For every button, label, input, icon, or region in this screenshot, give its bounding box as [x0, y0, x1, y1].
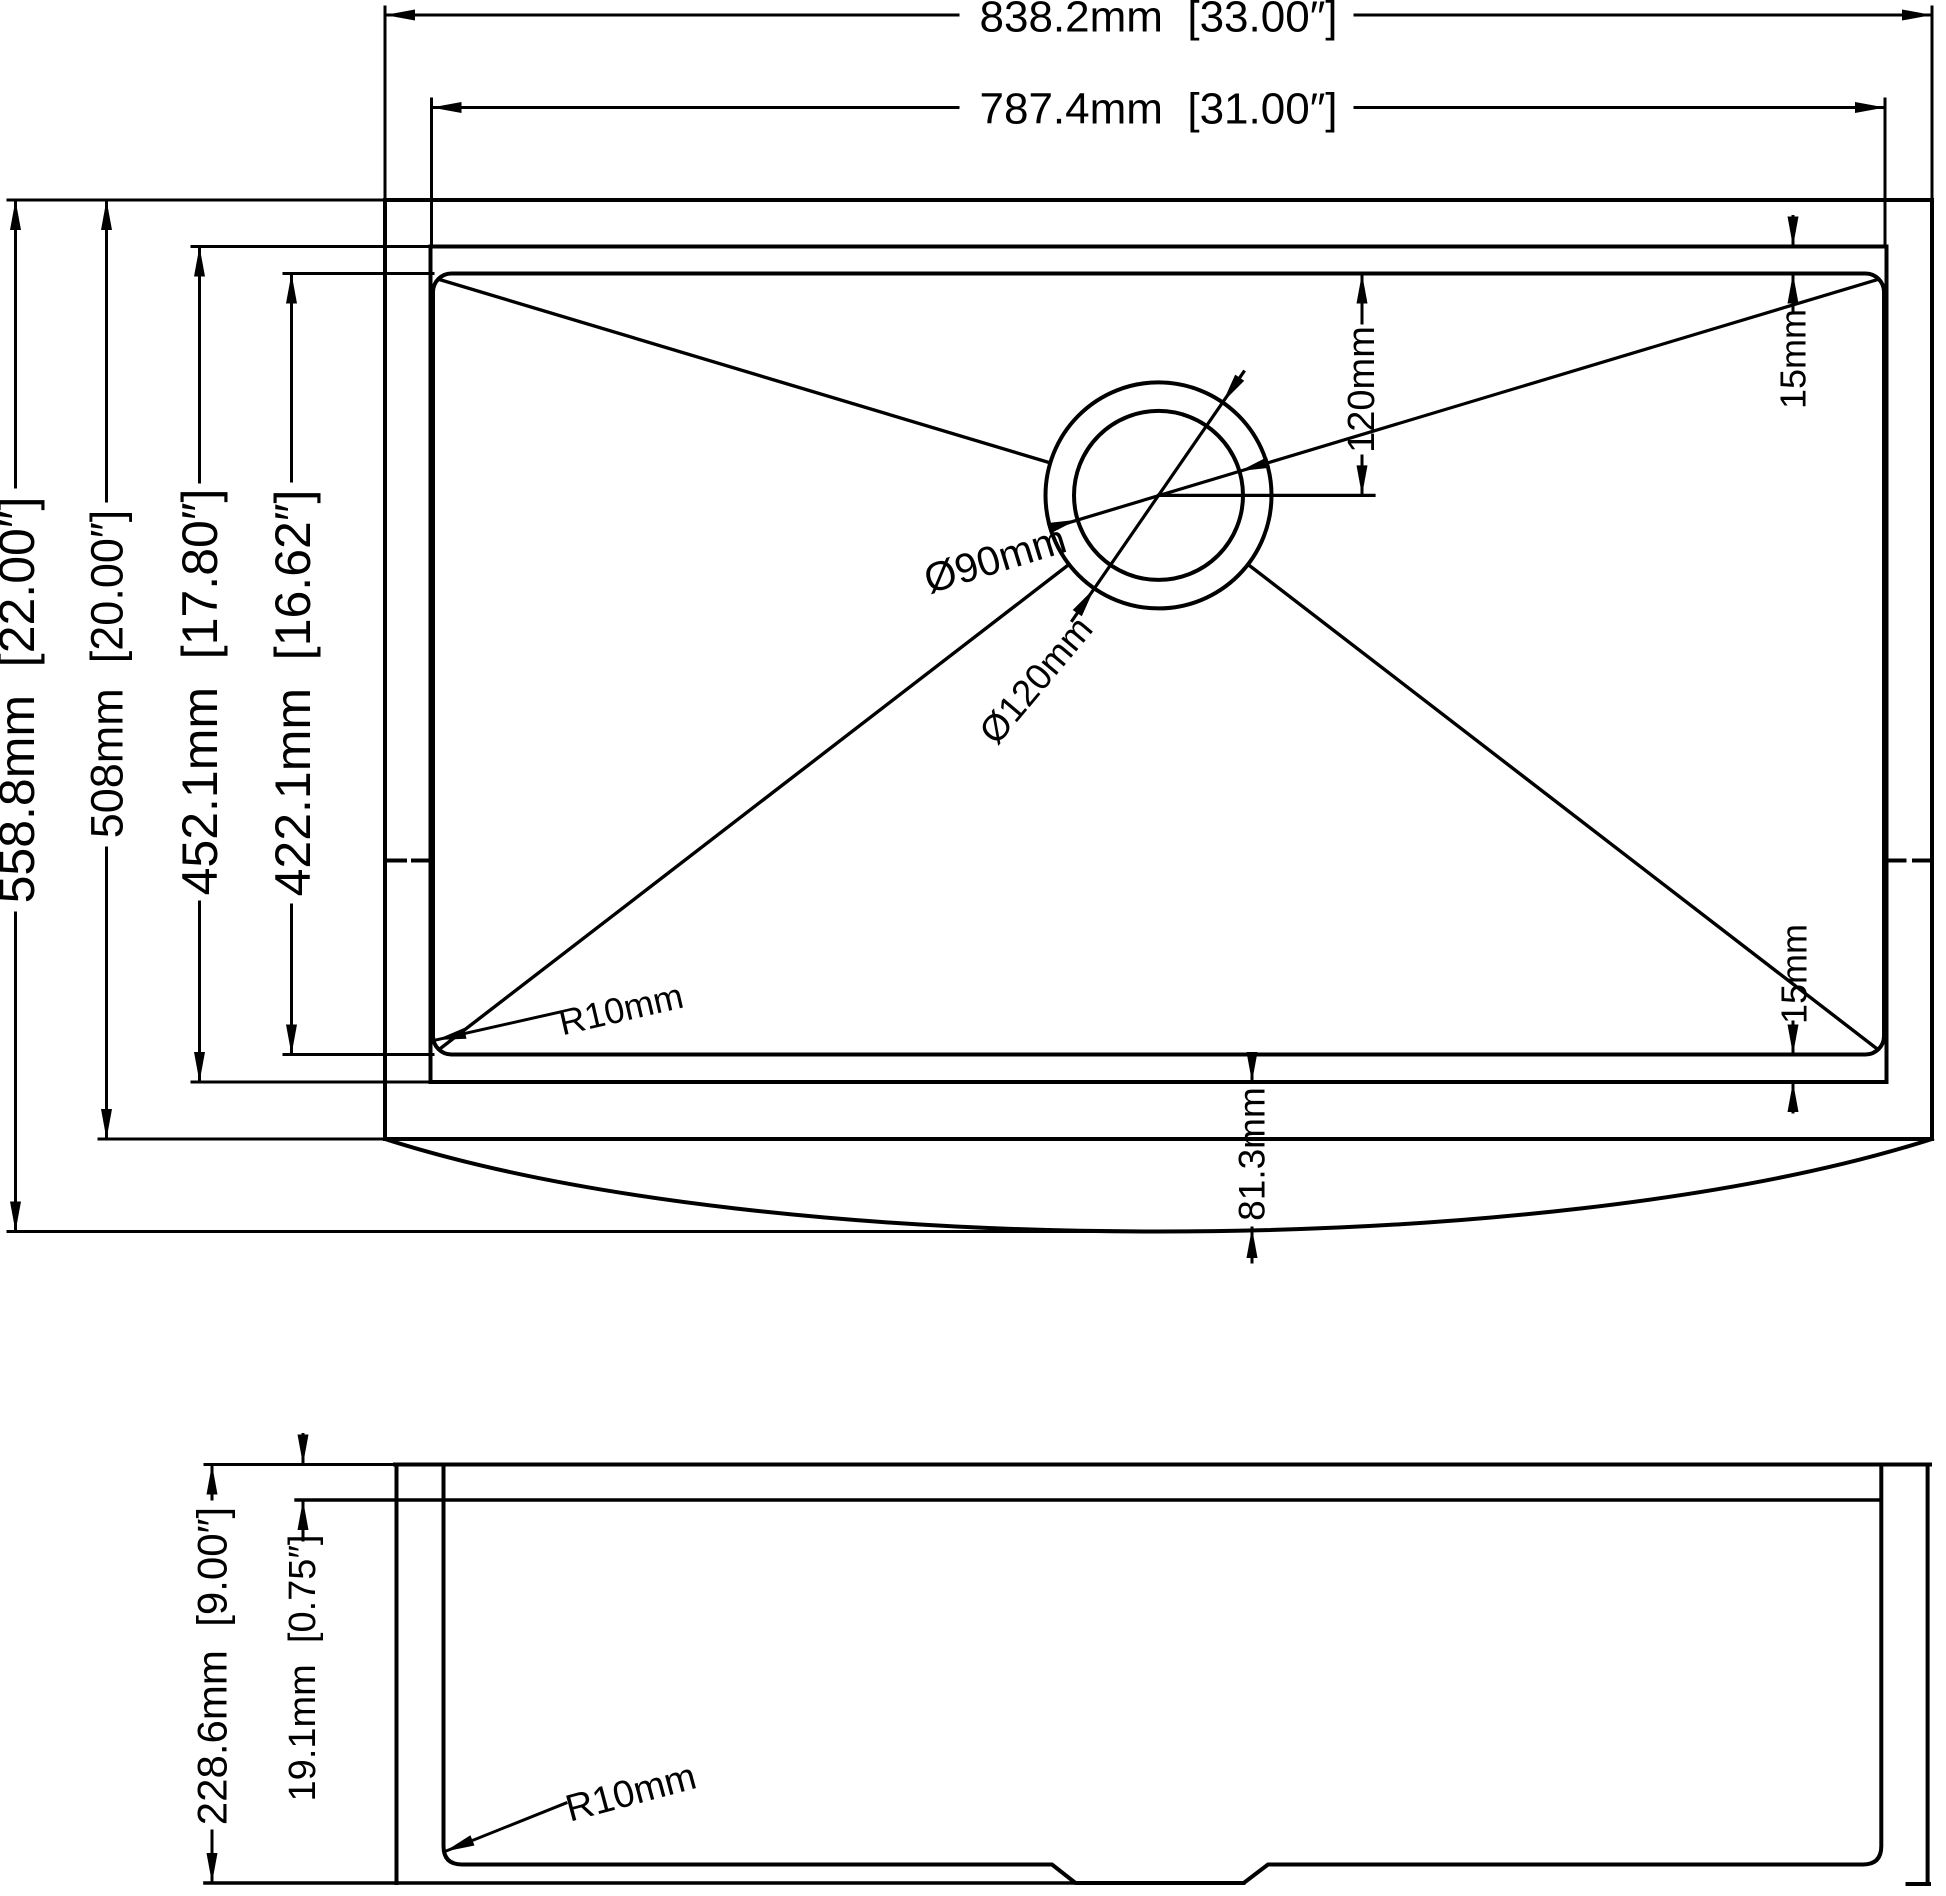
svg-text:558.8mm [22.00″]: 558.8mm [22.00″]: [0, 497, 45, 904]
svg-text:81.3mm: 81.3mm: [1232, 1087, 1273, 1221]
svg-text:838.2mm [33.00″]: 838.2mm [33.00″]: [980, 0, 1338, 42]
svg-text:Ø90mm: Ø90mm: [919, 516, 1072, 603]
svg-text:15mm: 15mm: [1773, 309, 1814, 409]
svg-text:422.1mm [16.62″]: 422.1mm [16.62″]: [265, 490, 321, 897]
svg-text:19.1mm [0.75″]: 19.1mm [0.75″]: [282, 1535, 324, 1802]
svg-text:452.1mm [17.80″]: 452.1mm [17.80″]: [172, 489, 228, 896]
svg-text:787.4mm [31.00″]: 787.4mm [31.00″]: [980, 85, 1338, 134]
svg-text:R10mm: R10mm: [555, 975, 687, 1043]
svg-text:120mm: 120mm: [1341, 326, 1383, 453]
svg-text:228.6mm [9.00″]: 228.6mm [9.00″]: [189, 1507, 236, 1825]
svg-text:Ø120mm: Ø120mm: [971, 609, 1100, 752]
svg-text:15mm: 15mm: [1774, 924, 1815, 1024]
svg-text:508mm [20.00″]: 508mm [20.00″]: [82, 510, 133, 839]
svg-text:R10mm: R10mm: [561, 1756, 700, 1831]
